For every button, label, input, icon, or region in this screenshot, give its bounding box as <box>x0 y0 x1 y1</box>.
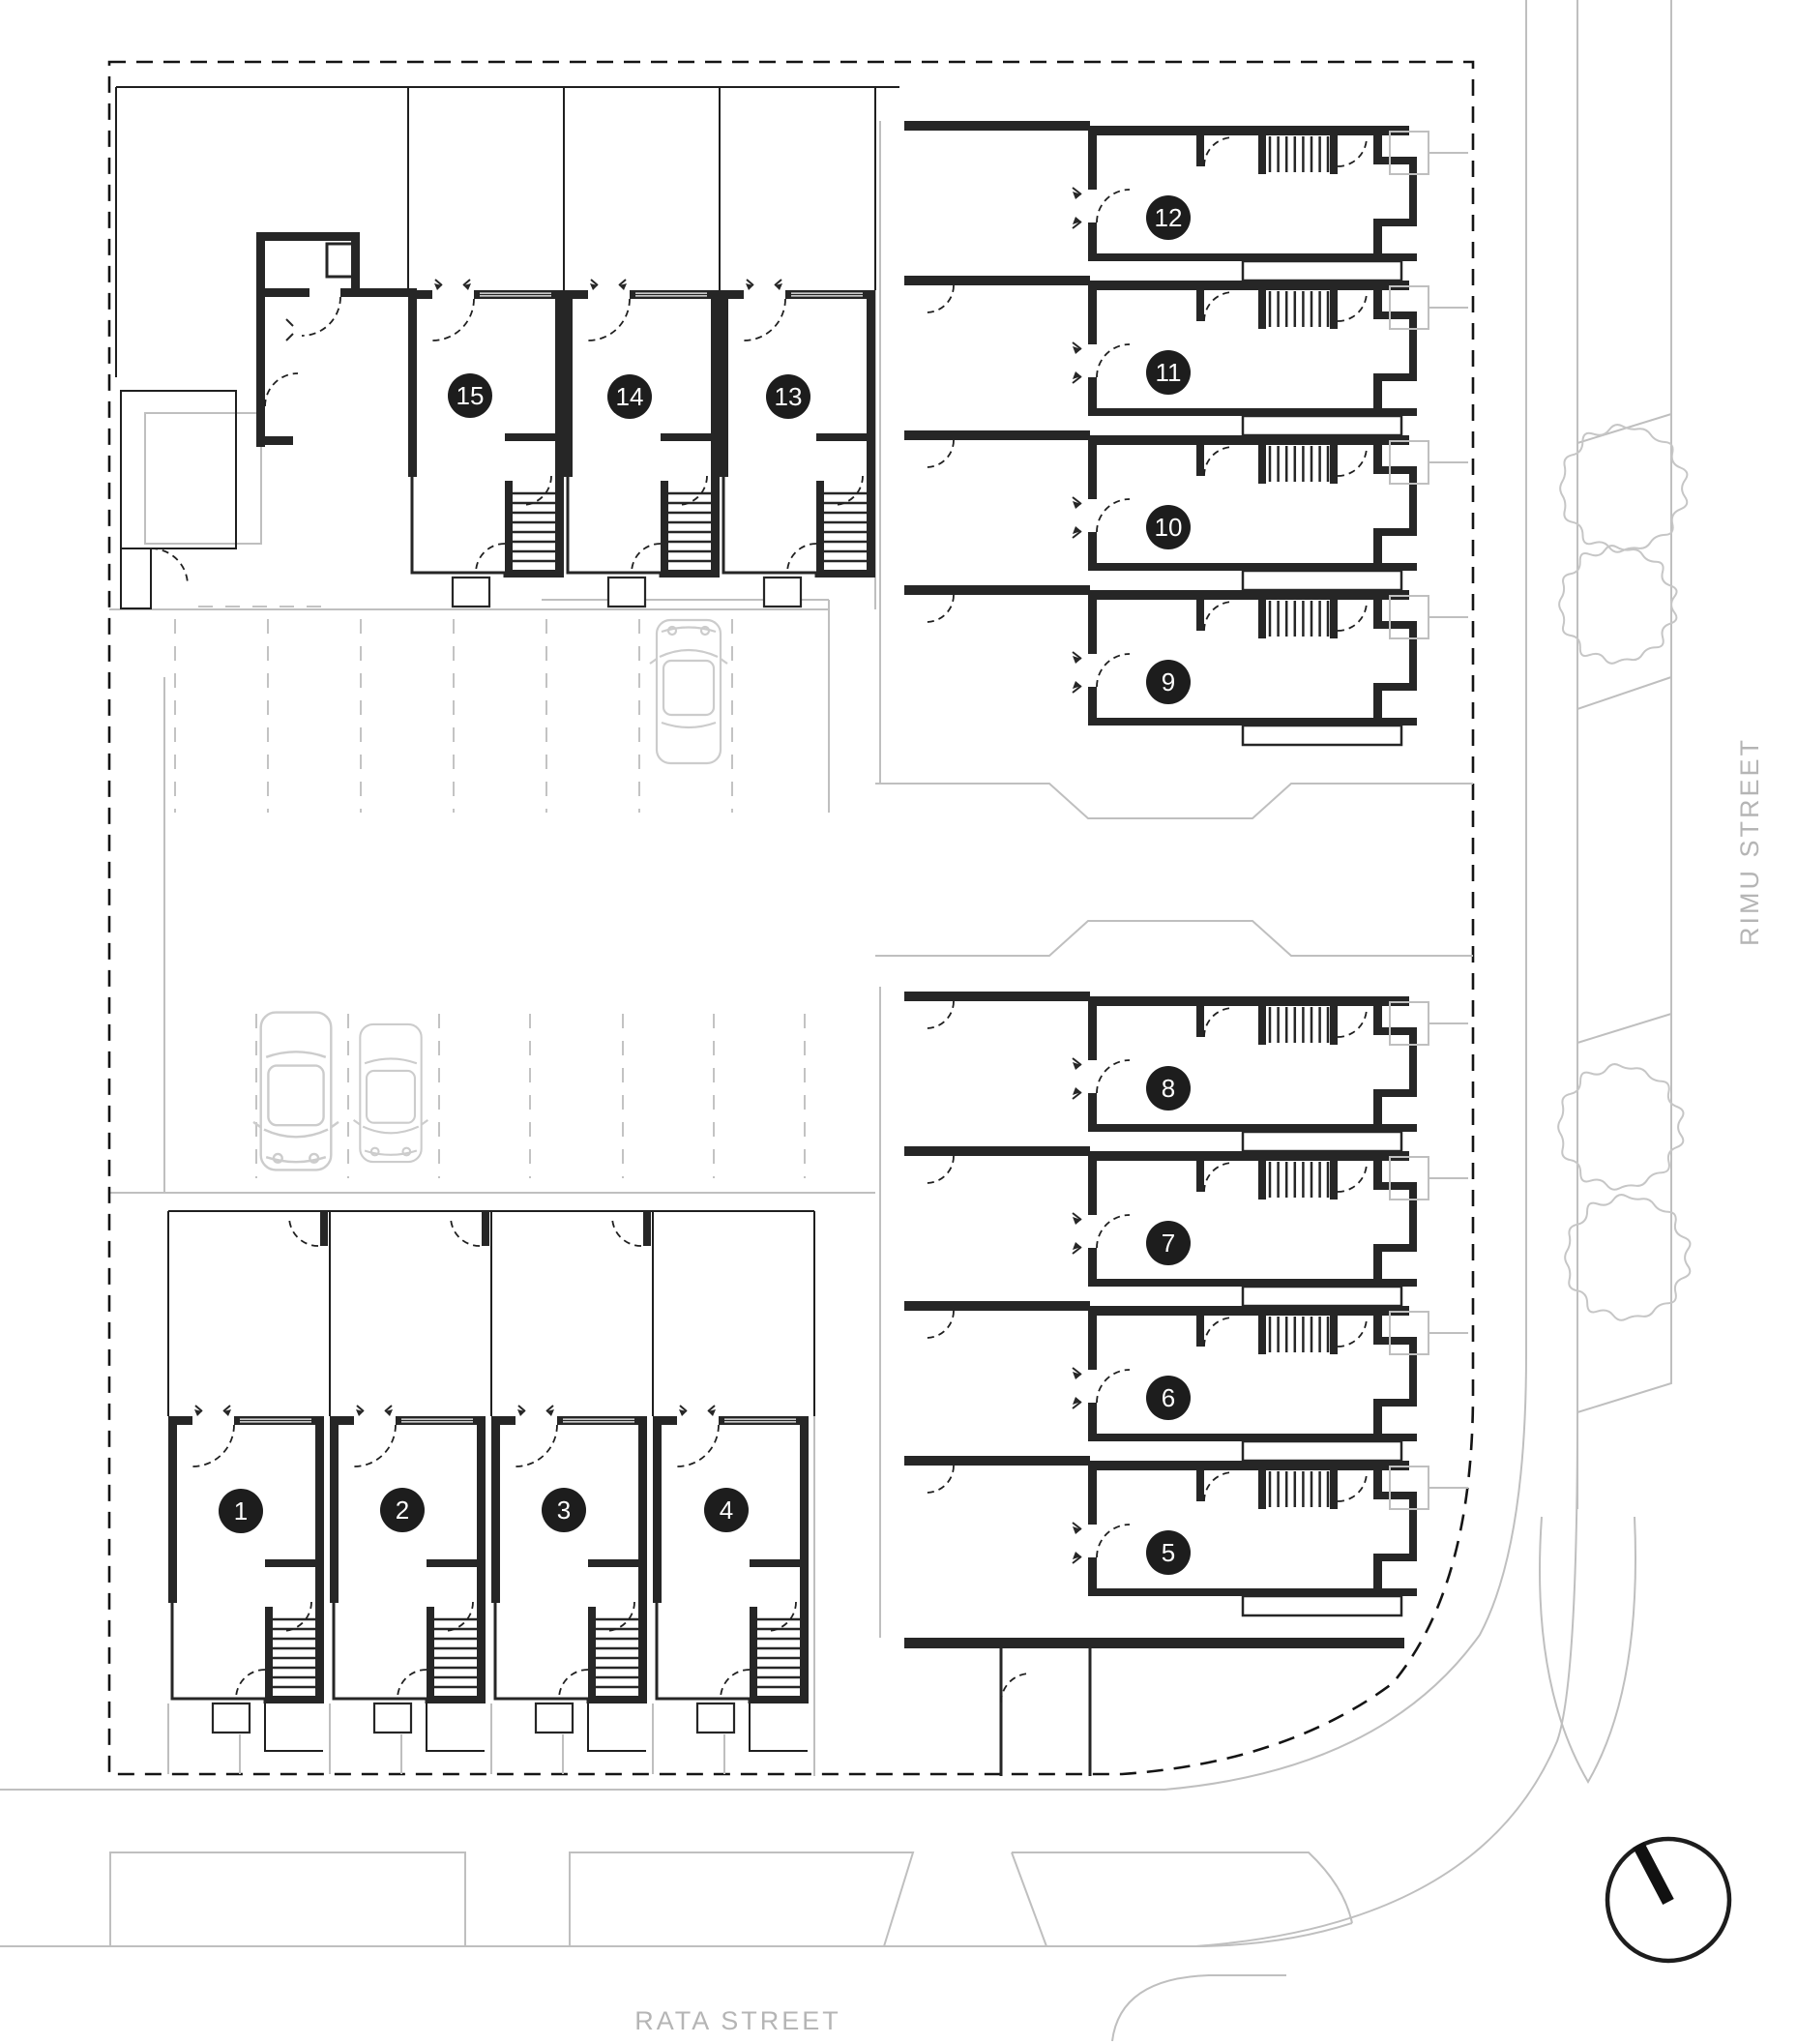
parking-stall-lines-upper <box>175 619 732 813</box>
unit-3-building <box>491 1406 647 1733</box>
unit-number: 13 <box>775 382 803 411</box>
unit-5-building <box>1073 1461 1417 1615</box>
parking-edge-lower <box>109 677 875 1193</box>
site-plan-page: 1 2 3 4 5 6 7 8 9 10 11 12 13 14 15 RATA… <box>0 0 1797 2044</box>
garage-building <box>121 391 261 608</box>
unit-7-building <box>1073 1151 1417 1306</box>
footpath-slab <box>110 1852 465 1946</box>
unit-1-building <box>168 1406 324 1733</box>
unit-number: 8 <box>1162 1074 1175 1103</box>
unit-2-building <box>330 1406 486 1733</box>
unit-number: 9 <box>1162 667 1175 696</box>
unit-12-building <box>1073 126 1417 281</box>
unit-14-building <box>564 280 720 607</box>
rata-street-label: RATA STREET <box>634 2006 841 2035</box>
unit-badge-14[interactable]: 14 <box>607 374 652 419</box>
corner-footpath <box>1112 1975 1286 2041</box>
unit-number: 4 <box>720 1496 733 1525</box>
unit-badge-12[interactable]: 12 <box>1146 195 1191 240</box>
unit-badge-2[interactable]: 2 <box>380 1488 425 1532</box>
unit-number: 5 <box>1162 1538 1175 1567</box>
unit-badge-9[interactable]: 9 <box>1146 660 1191 704</box>
street-layer <box>0 0 1671 2041</box>
rimu-street-label: RIMU STREET <box>1735 737 1764 946</box>
unit-6-building <box>1073 1306 1417 1461</box>
car-icon <box>650 620 727 763</box>
unit-number: 2 <box>396 1496 409 1525</box>
unit-badge-11[interactable]: 11 <box>1146 350 1191 395</box>
tree-icon <box>1560 425 1687 552</box>
footpath-slab <box>570 1852 913 1946</box>
unit-badge-13[interactable]: 13 <box>766 374 810 419</box>
yard-line-notch-upper <box>875 784 1473 818</box>
unit-number: 3 <box>557 1496 571 1525</box>
unit-badge-1[interactable]: 1 <box>219 1489 263 1533</box>
unit-13-building <box>720 280 875 607</box>
berm-lines <box>1577 0 1671 1509</box>
unit-badge-8[interactable]: 8 <box>1146 1066 1191 1111</box>
unit-badge-4[interactable]: 4 <box>704 1488 749 1532</box>
site-plan-drawing: 1 2 3 4 5 6 7 8 9 10 11 12 13 14 15 RATA… <box>0 0 1797 2044</box>
flat-yard-walls <box>880 121 1404 1648</box>
yard-line-notch-lower <box>875 921 1473 956</box>
unit-number: 10 <box>1155 513 1183 542</box>
unit-9-building <box>1073 590 1417 745</box>
unit-number: 15 <box>457 381 485 410</box>
unit-number: 11 <box>1156 358 1182 387</box>
unit-badge-7[interactable]: 7 <box>1146 1221 1191 1265</box>
car-icon <box>354 1024 428 1162</box>
unit-badge-15[interactable]: 15 <box>448 373 492 418</box>
unit-badge-6[interactable]: 6 <box>1146 1376 1191 1420</box>
parking-stall-lines-lower <box>256 1014 805 1178</box>
unit-badge-5[interactable]: 5 <box>1146 1530 1191 1575</box>
unit-10-building <box>1073 435 1417 590</box>
traffic-island <box>1540 1517 1635 1782</box>
unit-number: 14 <box>616 382 644 411</box>
north-arrow-icon <box>1607 1839 1729 1961</box>
entry-annex <box>256 232 417 447</box>
unit-number: 7 <box>1162 1229 1175 1258</box>
site-boundary <box>109 62 1473 1774</box>
unit-11-building <box>1073 281 1417 435</box>
unit-badge-3[interactable]: 3 <box>542 1488 586 1532</box>
unit-8-building <box>1073 996 1417 1151</box>
unit-4-building <box>653 1406 809 1733</box>
unit-badge-10[interactable]: 10 <box>1146 505 1191 549</box>
unit-number: 6 <box>1162 1383 1175 1412</box>
unit-number: 12 <box>1155 203 1183 232</box>
vehicle-layer <box>253 620 727 1170</box>
yard-path-walls <box>1001 1648 1090 1776</box>
unit-badges: 1 2 3 4 5 6 7 8 9 10 11 12 13 14 15 <box>219 195 1191 1575</box>
unit-15-building <box>408 280 564 607</box>
unit-number: 1 <box>234 1496 248 1526</box>
car-icon <box>253 1013 339 1170</box>
